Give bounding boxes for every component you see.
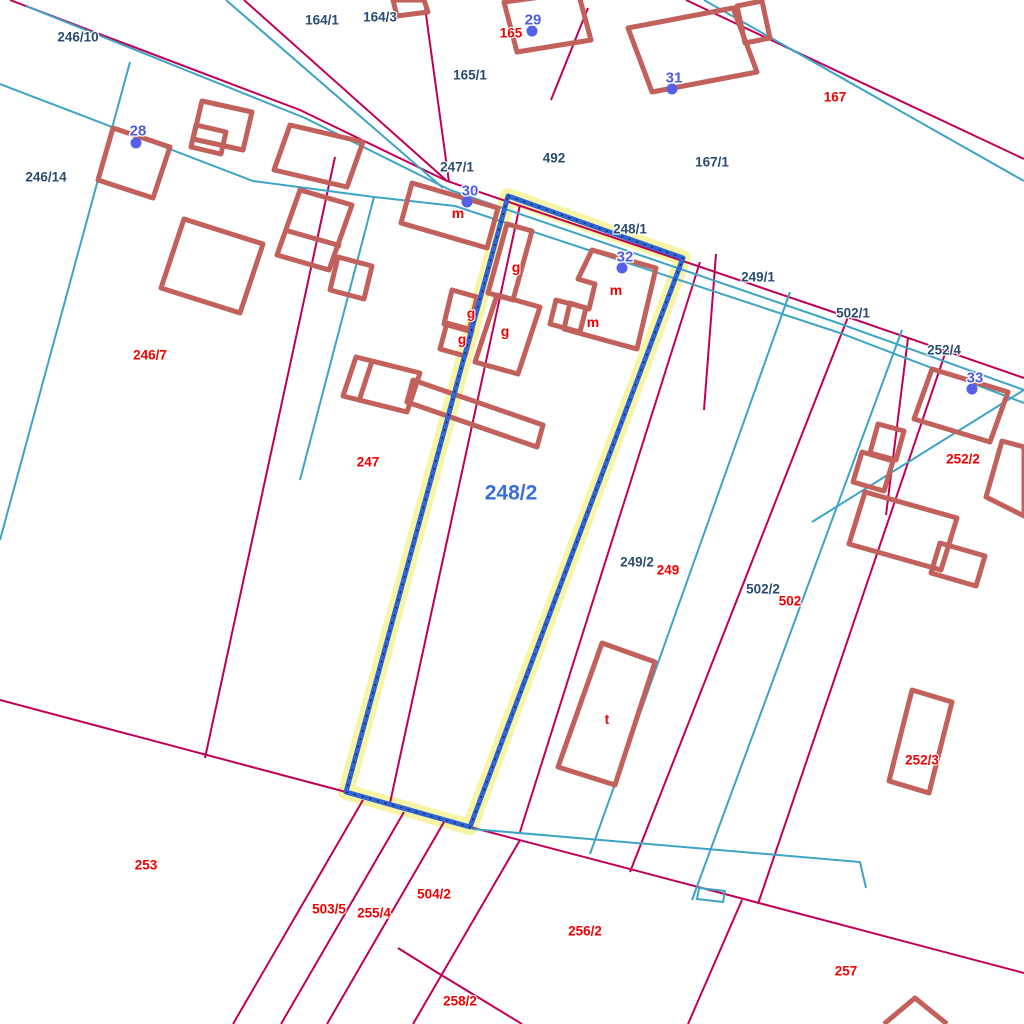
- map-canvas[interactable]: 246/10164/1164/3165/1492167/1246/14247/1…: [0, 0, 1024, 1024]
- label-layer: 246/10164/1164/3165/1492167/1246/14247/1…: [25, 10, 983, 1009]
- building: [931, 543, 985, 586]
- building-use-label: t: [605, 711, 610, 727]
- parcel-number-label: 502: [779, 594, 802, 609]
- parcel-number-label: 502/1: [836, 306, 870, 321]
- parcel-number-label: 167/1: [695, 155, 729, 170]
- building-use-label: g: [467, 305, 476, 321]
- parcel-line: [244, 0, 447, 181]
- parcel-number-label: 258/2: [443, 994, 477, 1009]
- building: [564, 250, 656, 349]
- building-divider: [359, 361, 372, 401]
- parcel-number-label: 503/5: [312, 902, 346, 917]
- parcel-line: [0, 700, 1024, 973]
- building: [737, 1, 770, 43]
- parcel-line: [327, 822, 444, 1024]
- parcel-number-label: 246/7: [133, 348, 167, 363]
- building-use-label: g: [512, 259, 521, 275]
- utility-line: [704, 0, 1024, 181]
- parcel-number-label: 257: [835, 964, 858, 979]
- parcel-number-label: 249/2: [620, 555, 654, 570]
- parcel-line: [424, 0, 449, 182]
- building-use-label: g: [501, 323, 510, 339]
- parcel-number-label: 492: [543, 151, 566, 166]
- parcel-number-label: 247: [357, 455, 380, 470]
- parcel-line: [205, 157, 335, 758]
- parcel-number-label: 504/2: [417, 887, 451, 902]
- parcel-line: [758, 345, 948, 904]
- building: [330, 257, 372, 299]
- parcel-number-label: 248/1: [613, 222, 647, 237]
- parcel-line: [630, 312, 850, 872]
- cadastral-map-svg[interactable]: 246/10164/1164/3165/1492167/1246/14247/1…: [0, 0, 1024, 1024]
- parcel-number-label: 247/1: [440, 160, 474, 175]
- building: [393, 0, 428, 16]
- parcel-number-label: 246/10: [57, 30, 98, 45]
- selected-parcel-label: 248/2: [485, 482, 538, 505]
- parcel-number-label: 252/4: [927, 343, 961, 358]
- parcel-number-label: 165/1: [453, 68, 487, 83]
- parcel-number-label: 167: [824, 90, 847, 105]
- building-use-label: g: [458, 331, 467, 347]
- survey-point-number: 28: [130, 123, 147, 140]
- parcel-number-label: 249/1: [741, 270, 775, 285]
- utility-structure: [697, 888, 725, 902]
- utility-line: [692, 330, 902, 900]
- survey-point-number: 32: [617, 249, 634, 266]
- survey-point-number: 33: [967, 370, 984, 387]
- parcel-line: [520, 262, 700, 832]
- parcel-number-label: 165: [500, 26, 523, 41]
- building: [849, 492, 957, 570]
- parcel-number-label: 256/2: [568, 924, 602, 939]
- building: [889, 690, 952, 793]
- parcel-number-label: 252/2: [946, 452, 980, 467]
- parcel-line: [398, 948, 522, 1024]
- survey-point-number: 30: [462, 183, 479, 200]
- parcel-number-label: 255/4: [357, 906, 391, 921]
- building: [986, 441, 1024, 516]
- road-edge-line: [10, 0, 1024, 378]
- parcel-number-label: 164/1: [305, 13, 339, 28]
- building-use-label: m: [452, 205, 464, 221]
- parcel-number-label: 164/3: [363, 10, 397, 25]
- building-use-label: m: [610, 282, 622, 298]
- building-use-label: m: [587, 314, 599, 330]
- survey-point-number: 29: [525, 12, 542, 29]
- building: [161, 219, 263, 313]
- building-divider: [288, 231, 341, 246]
- building: [884, 998, 947, 1024]
- survey-point-number: 31: [666, 70, 683, 87]
- parcel-number-label: 252/3: [905, 753, 939, 768]
- parcel-number-label: 246/14: [25, 170, 67, 185]
- parcel-line: [551, 8, 588, 100]
- parcel-number-label: 502/2: [746, 582, 780, 597]
- parcel-number-label: 253: [135, 858, 158, 873]
- parcel-line: [688, 900, 742, 1024]
- parcel-number-label: 249: [657, 563, 680, 578]
